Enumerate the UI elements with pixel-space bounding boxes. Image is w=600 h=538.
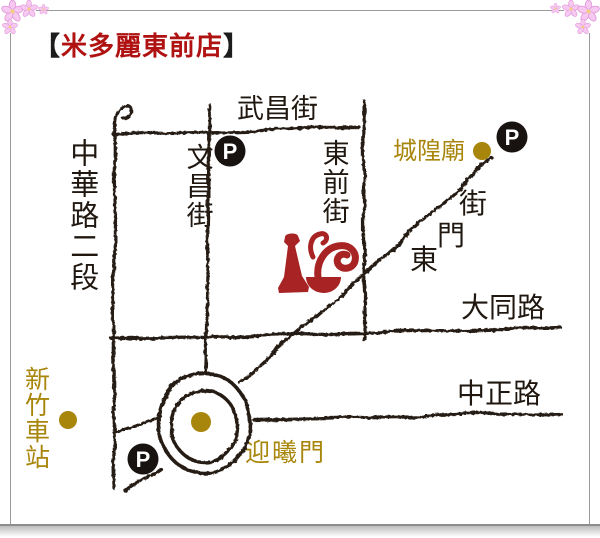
flower-icon [562, 0, 580, 18]
label-dongmen-street-char-1: 街 [459, 189, 487, 219]
logo-steam-spiral [318, 246, 356, 277]
road-roundabout-southwest-stub [124, 467, 159, 490]
label-yingxi-gate: 迎曦門 [245, 440, 326, 467]
flower-decoration-top-right [550, 0, 600, 35]
label-chenghuang-temple: 城隍廟 [393, 139, 465, 164]
frame-right-border [589, 33, 590, 524]
parking-letter: P [223, 139, 238, 164]
label-zhonghua-road-sec2: 中華路二段 [66, 138, 97, 293]
label-hsinchu-station: 新竹車站 [22, 366, 49, 470]
label-zhongzheng-road: 中正路 [457, 379, 541, 409]
title-bracket-close: 】 [223, 31, 250, 61]
road-datong-horizontal [110, 326, 559, 337]
roundabout-center-dot [191, 412, 211, 432]
store-logo [278, 233, 355, 293]
parking-icon-chenghuang: P [497, 122, 528, 153]
flower-icon [20, 0, 38, 18]
road-dongqian-vertical [362, 99, 363, 339]
logo-bottle [278, 233, 309, 293]
store-name: 米多麗東前店 [61, 31, 223, 61]
map-card: 【米多麗東前店】 武昌街 文昌街 中華路二段 東前街 城隍廟 街 門 東 大同路… [0, 0, 600, 538]
label-wuchang-street: 武昌街 [237, 95, 318, 124]
flower-icon [550, 3, 561, 14]
chenghuang-temple-dot [473, 142, 491, 160]
flower-icon [1, 0, 25, 22]
roundabout-outer-ring [156, 371, 248, 471]
road-zhongzheng-horizontal [252, 412, 559, 418]
road-wuchang-horizontal [112, 125, 357, 133]
logo-bowl [306, 277, 341, 293]
label-dongqian-street: 東前街 [319, 139, 348, 226]
label-dongmen-street-char-3: 東 [410, 245, 438, 275]
label-dongmen-street-char-2: 門 [437, 221, 465, 251]
parking-icon-roundabout: P [128, 444, 159, 475]
road-roundabout-west-link [112, 414, 158, 431]
frame-top-border [36, 10, 564, 11]
frame-left-border [10, 33, 11, 524]
road-zhonghua-vertical [112, 104, 130, 487]
parking-icon-wenchang: P [215, 136, 246, 167]
parking-letter: P [505, 125, 520, 150]
logo-steam-small-curl [311, 234, 327, 257]
page-title: 【米多麗東前店】 [34, 26, 250, 63]
hsinchu-station-dot [59, 411, 77, 429]
title-bracket-open: 【 [34, 31, 61, 61]
label-wenchang-street: 文昌街 [183, 143, 212, 230]
flower-icon [577, 0, 600, 22]
parking-letter: P [136, 447, 151, 472]
frame-bottom-shadow [0, 526, 600, 537]
road-dongmen-diagonal [238, 157, 491, 381]
label-datong-road: 大同路 [461, 293, 545, 323]
roundabout-inner-ring [169, 388, 235, 460]
